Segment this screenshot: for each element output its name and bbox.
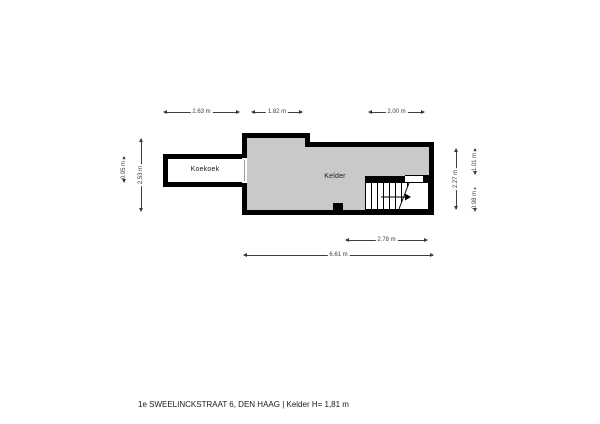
dimension-stair-bottom-height: 0.98 m — [471, 187, 479, 212]
dimension-koekoek-width: 2.63 m — [163, 108, 240, 116]
dimension-label: 6.61 m — [327, 252, 349, 258]
room-label-koekoek: Koekoek — [175, 166, 235, 173]
dimension-kelder-right-height: 2.27 m — [452, 148, 460, 210]
door-jamb-top — [242, 156, 247, 158]
dimension-kelder-right-section-width: 2.00 m — [368, 108, 425, 116]
dimension-stair-top-height: 1.01 m — [471, 148, 479, 175]
wall-stub — [333, 203, 343, 215]
kelder-floor-notch — [247, 138, 305, 210]
room-label-kelder: Kelder — [305, 173, 365, 180]
door-jamb-bottom — [242, 183, 247, 185]
dimension-kelder-left-section-width: 1.82 m — [251, 108, 303, 116]
dimension-label: 2.78 m — [375, 237, 397, 243]
stair-landing — [399, 183, 428, 209]
dimension-label: 2.00 m — [385, 109, 407, 115]
floor-plan-canvas: Koekoek Kelder 2.63 m 1.82 m 2.00 m 0.95… — [0, 0, 600, 424]
dimension-koekoek-height: 0.95 m — [120, 156, 128, 183]
dimension-label: 2.63 m — [190, 109, 212, 115]
dimension-stair-section-width: 2.78 m — [345, 236, 428, 244]
dimension-label: 2.27 m — [453, 168, 459, 190]
dimension-kelder-total-width: 6.61 m — [243, 251, 434, 259]
stair-diagonal-and-arrow — [365, 182, 429, 210]
caption: 1e SWEELINCKSTRAAT 6, DEN HAAG | Kelder … — [138, 400, 349, 409]
dimension-label: 0.95 m — [121, 158, 127, 180]
dimension-label: 1.01 m — [472, 150, 478, 172]
door-opening-line — [244, 160, 245, 181]
dimension-label: 2.53 m — [138, 164, 144, 186]
dimension-label: 0.98 m — [472, 188, 478, 210]
dimension-kelder-left-height: 2.53 m — [137, 138, 145, 212]
dimension-label: 1.82 m — [266, 109, 288, 115]
